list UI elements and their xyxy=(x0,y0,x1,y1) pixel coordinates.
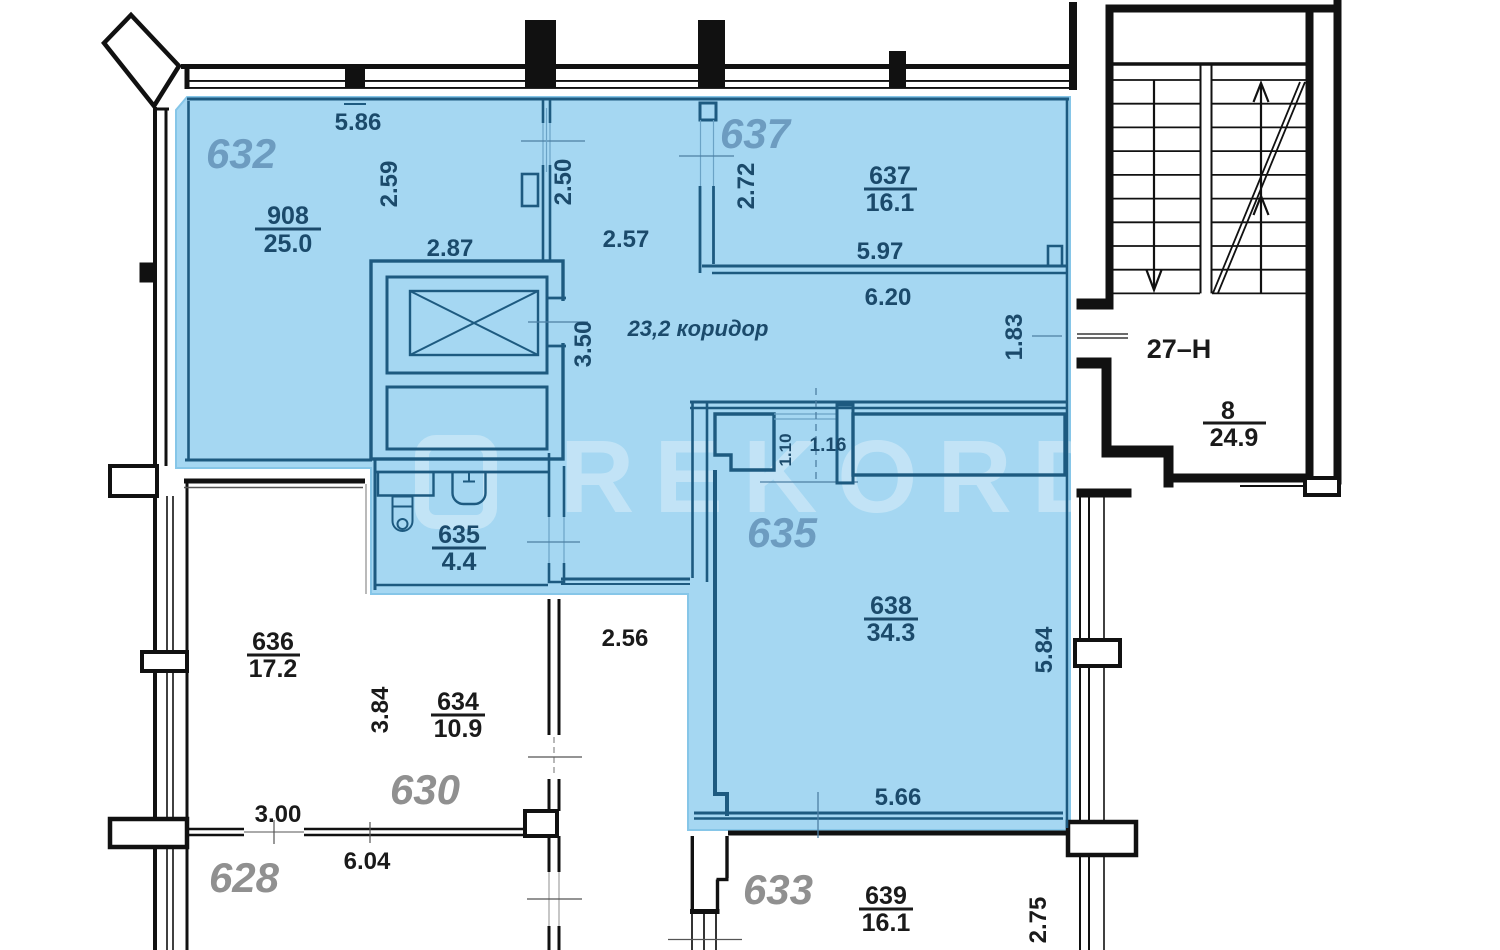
svg-text:34.3: 34.3 xyxy=(867,619,916,647)
svg-text:5.66: 5.66 xyxy=(875,784,922,811)
svg-text:633: 633 xyxy=(743,866,813,913)
svg-text:27–Н: 27–Н xyxy=(1147,334,1212,364)
svg-text:23,2 коридор: 23,2 коридор xyxy=(627,316,769,341)
svg-text:908: 908 xyxy=(267,202,309,230)
svg-text:3.84: 3.84 xyxy=(367,686,394,733)
svg-text:25.0: 25.0 xyxy=(264,230,313,258)
svg-text:10.9: 10.9 xyxy=(434,715,483,743)
svg-text:8: 8 xyxy=(1221,397,1235,425)
svg-text:1.16: 1.16 xyxy=(810,435,847,456)
svg-text:637: 637 xyxy=(869,162,911,190)
svg-text:24.9: 24.9 xyxy=(1210,424,1259,452)
svg-text:3.00: 3.00 xyxy=(255,801,302,828)
svg-text:635: 635 xyxy=(747,509,818,556)
svg-text:635: 635 xyxy=(438,521,480,549)
svg-text:636: 636 xyxy=(252,628,294,656)
svg-text:1.10: 1.10 xyxy=(776,433,795,466)
svg-text:2.87: 2.87 xyxy=(427,235,474,262)
svg-text:4.4: 4.4 xyxy=(442,548,477,576)
svg-text:5.86: 5.86 xyxy=(335,109,382,136)
svg-text:2.56: 2.56 xyxy=(602,625,649,652)
svg-text:628: 628 xyxy=(209,854,280,901)
svg-text:637: 637 xyxy=(720,110,792,157)
svg-text:3.50: 3.50 xyxy=(570,321,597,368)
svg-text:5.84: 5.84 xyxy=(1031,626,1058,673)
svg-text:16.1: 16.1 xyxy=(866,189,915,217)
svg-text:17.2: 17.2 xyxy=(249,655,298,683)
svg-text:632: 632 xyxy=(206,130,276,177)
svg-text:5.97: 5.97 xyxy=(857,238,904,265)
svg-text:2.75: 2.75 xyxy=(1025,897,1052,944)
svg-text:2.57: 2.57 xyxy=(603,226,650,253)
svg-text:1.83: 1.83 xyxy=(1001,314,1028,361)
svg-text:634: 634 xyxy=(437,688,479,716)
svg-text:16.1: 16.1 xyxy=(862,909,911,937)
svg-text:638: 638 xyxy=(870,592,912,620)
svg-text:6.04: 6.04 xyxy=(344,848,391,875)
svg-text:639: 639 xyxy=(865,882,907,910)
svg-text:2.72: 2.72 xyxy=(733,163,760,210)
svg-text:630: 630 xyxy=(390,766,460,813)
svg-text:2.50: 2.50 xyxy=(550,159,577,206)
svg-text:2.59: 2.59 xyxy=(376,161,403,208)
svg-text:6.20: 6.20 xyxy=(865,284,912,311)
